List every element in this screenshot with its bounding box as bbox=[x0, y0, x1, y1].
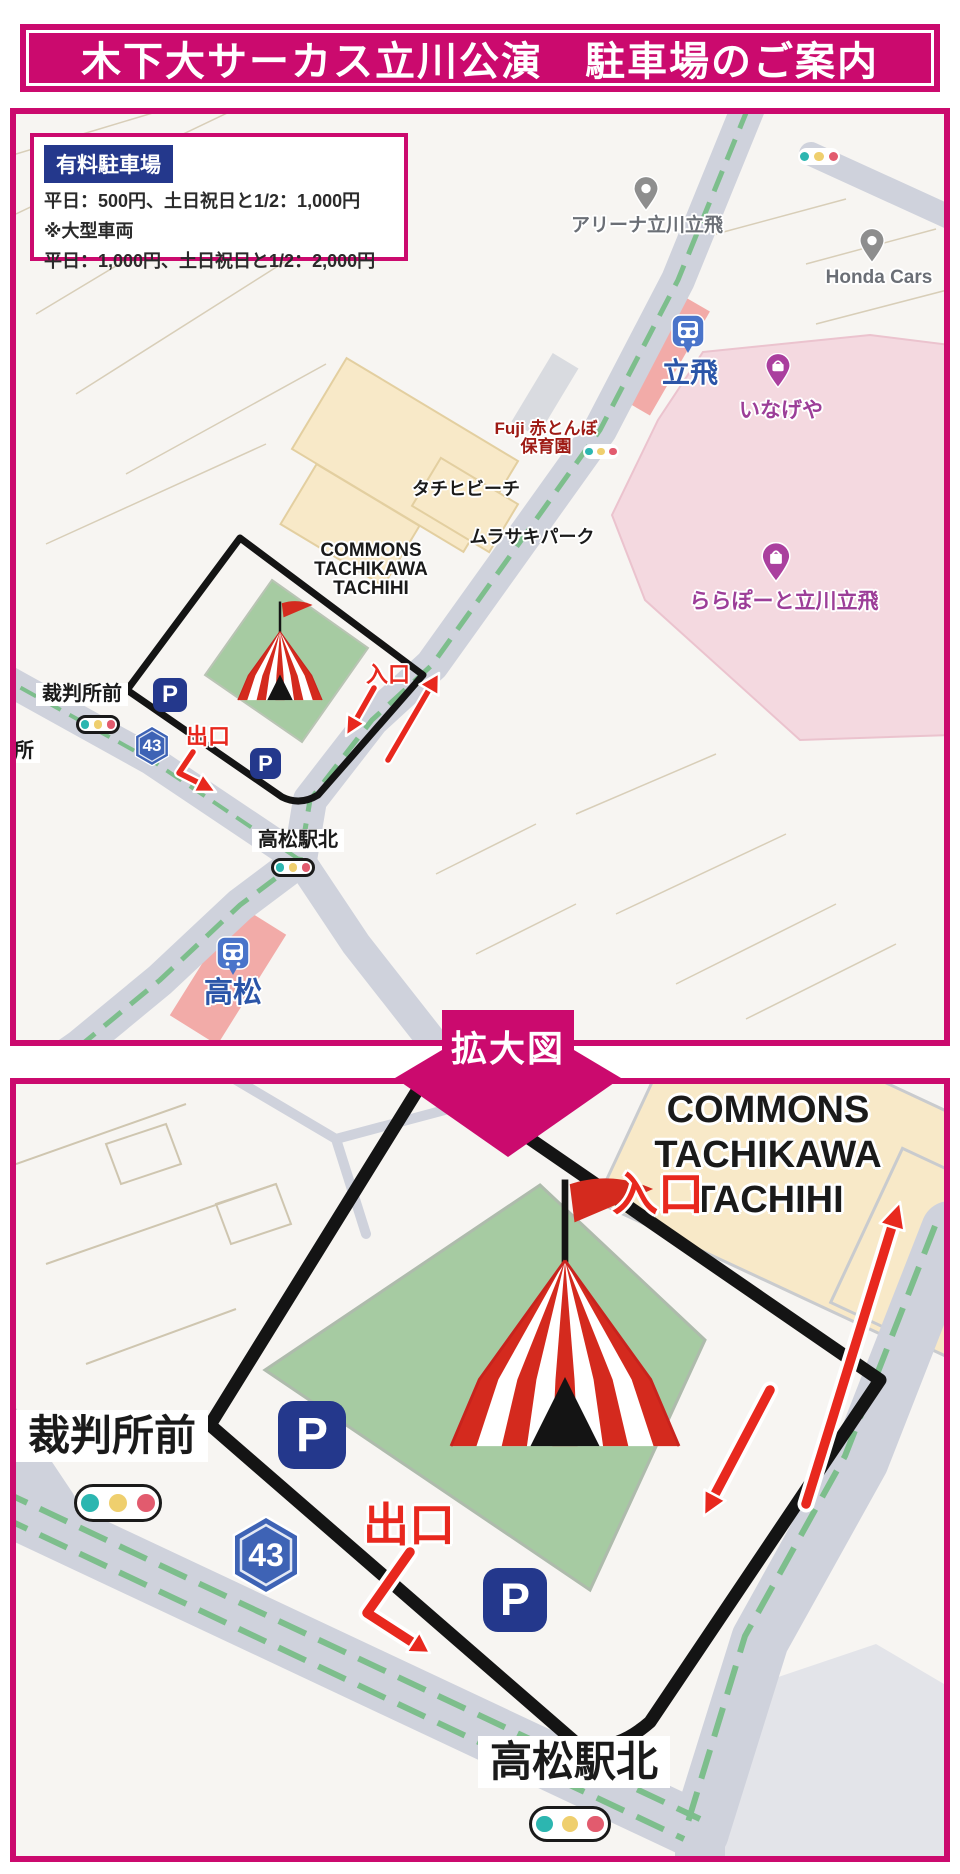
honda-cars-label: Honda Cars bbox=[826, 268, 933, 288]
signal-yellow-dot bbox=[814, 152, 823, 161]
header-banner-inner-border: 木下大サーカス立川公演 駐車場のご案内 bbox=[26, 30, 934, 86]
signal-yellow-dot bbox=[109, 1494, 127, 1512]
signal-teal-dot bbox=[81, 1494, 99, 1512]
takamatsu-eki-kita-label: 高松駅北 bbox=[478, 1736, 670, 1788]
nursery-label-line2: 保育園 bbox=[495, 438, 598, 456]
entrance-turn-arrow bbox=[704, 1390, 770, 1516]
inageya-basket-pin-icon bbox=[764, 353, 792, 393]
lalaport-building bbox=[612, 335, 944, 740]
parking-icon: P bbox=[250, 748, 281, 779]
zoom-callout: 拡大図 bbox=[393, 1010, 623, 1158]
parking-icon: P bbox=[483, 1568, 547, 1632]
commons-label: COMMONS TACHIKAWA TACHIHI bbox=[314, 541, 428, 598]
traffic-light-icon bbox=[74, 1484, 162, 1522]
takamatsu-station-label: 高松 bbox=[204, 978, 262, 1008]
parking-fee-box: 有料駐車場 平日：500円、土日祝日と1/2：1,000円 ※大型車両 平日：1… bbox=[30, 133, 408, 261]
traffic-light-icon bbox=[529, 1806, 611, 1842]
nursery-label-line1: Fuji 赤とんぼ bbox=[495, 420, 598, 438]
page-title: 木下大サーカス立川公演 駐車場のご案内 bbox=[81, 29, 879, 87]
fee-box-title-badge: 有料駐車場 bbox=[44, 145, 173, 183]
tachihi-beach-label: タチヒビーチ bbox=[412, 480, 520, 499]
inageya-label: いなげや bbox=[739, 400, 823, 422]
murasaki-park-label: ムラサキパーク bbox=[469, 528, 594, 547]
header-banner: 木下大サーカス立川公演 駐車場のご案内 bbox=[20, 24, 940, 92]
enlarged-map: COMMONS TACHIKAWA TACHIHI 裁判所前 43 P P 出口… bbox=[10, 1078, 950, 1862]
traffic-light-icon bbox=[798, 148, 840, 165]
exit-label: 出口 bbox=[363, 1501, 455, 1549]
parking-guide-page: 木下大サーカス立川公演 駐車場のご案内 bbox=[0, 0, 960, 1874]
signal-red-dot bbox=[137, 1494, 155, 1512]
signal-teal-dot bbox=[800, 152, 809, 161]
route-43-badge: 43 bbox=[134, 726, 170, 766]
overview-map: 有料駐車場 平日：500円、土日祝日と1/2：1,000円 ※大型車両 平日：1… bbox=[10, 108, 950, 1046]
commons-label-line3: TACHIHI bbox=[314, 579, 428, 598]
exit-label: 出口 bbox=[186, 725, 230, 748]
commons-label-line2: TACHIKAWA bbox=[314, 560, 428, 579]
route-43-badge: 43 bbox=[231, 1516, 301, 1594]
commons-label-line1: COMMONS bbox=[314, 541, 428, 560]
traffic-light-icon bbox=[271, 858, 315, 877]
lalaport-label: ららぽーと立川立飛 bbox=[690, 591, 879, 613]
route-number: 43 bbox=[134, 726, 170, 766]
takamatsu-station-icon bbox=[216, 936, 250, 981]
fee-note: ※大型車両 bbox=[44, 217, 404, 243]
saibansho-partial-label: 所 bbox=[10, 740, 40, 763]
saibansho-mae-label: 裁判所前 bbox=[36, 683, 128, 706]
tachihi-station-icon bbox=[671, 314, 705, 359]
lalaport-bag-pin-icon bbox=[760, 542, 792, 588]
parking-icon: P bbox=[153, 678, 187, 712]
honda-pin-icon bbox=[858, 228, 886, 268]
traffic-light-icon bbox=[76, 715, 120, 734]
zoom-callout-label: 拡大図 bbox=[442, 1020, 574, 1072]
tachihi-station-label: 立飛 bbox=[662, 358, 718, 387]
saibansho-mae-label: 裁判所前 bbox=[16, 1410, 208, 1462]
arena-pin-icon bbox=[632, 176, 660, 216]
fee-large-vehicle-line: 平日：1,000円、土日祝日と1/2：2,000円 bbox=[44, 247, 404, 273]
signal-red-dot bbox=[829, 152, 838, 161]
takamatsu-eki-kita-label: 高松駅北 bbox=[252, 829, 344, 852]
nursery-label: Fuji 赤とんぼ 保育園 bbox=[495, 420, 598, 456]
route-number: 43 bbox=[231, 1516, 301, 1594]
commons-label-line1: COMMONS bbox=[654, 1088, 881, 1133]
arena-label: アリーナ立川立飛 bbox=[571, 216, 723, 236]
entrance-label: 入口 bbox=[612, 1170, 704, 1218]
entrance-label: 入口 bbox=[366, 663, 410, 686]
fee-weekday-line: 平日：500円、土日祝日と1/2：1,000円 bbox=[44, 187, 404, 213]
parking-icon: P bbox=[278, 1401, 346, 1469]
